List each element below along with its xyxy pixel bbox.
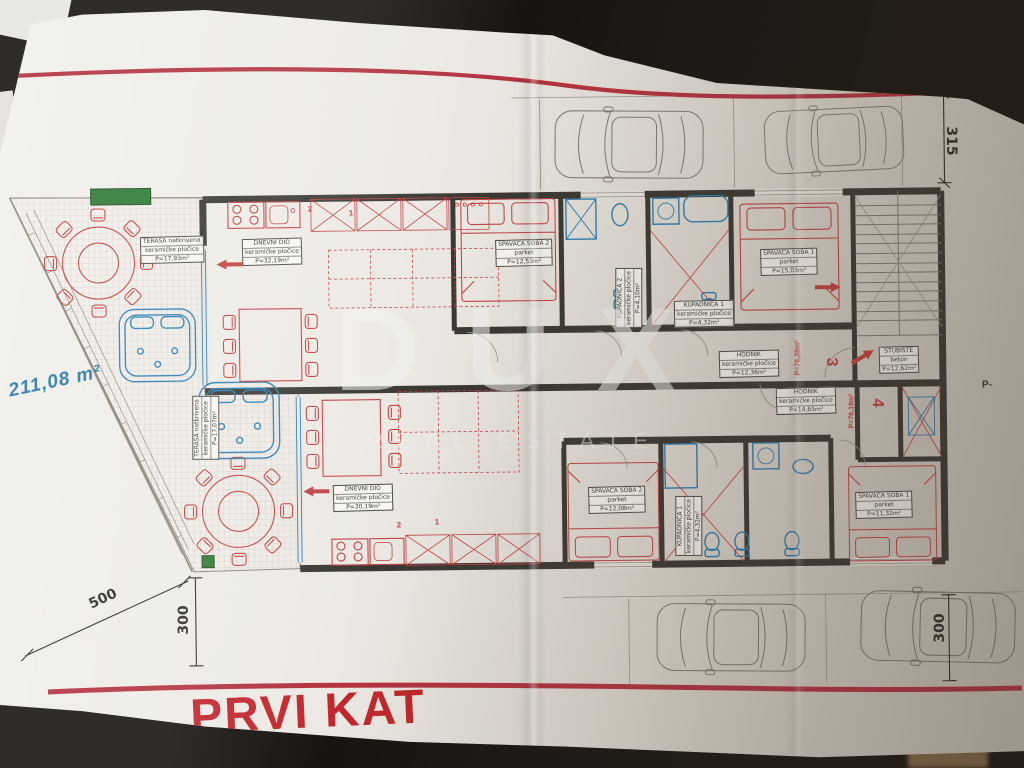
page-title: PRVI KAT [189, 679, 427, 744]
elevator-shaft [902, 387, 942, 457]
position-mark: 1 [435, 517, 440, 526]
room-label-terasa-lower: TERASA natkrivena keramičke pločice P=17… [192, 396, 219, 460]
room-area: P=12,08m² [590, 504, 645, 513]
entry-arrow-icon [216, 259, 242, 269]
room-area: P=4,32m² [694, 497, 702, 555]
room-label-terasa-upper: TERASA natkrivena keramičke pločice P=17… [140, 235, 204, 264]
dimension-300-right: 300 [932, 613, 948, 642]
room-floor: keramičke pločice [685, 497, 694, 555]
room-label-dnevni-lower: DNEVNI DIO keramičke pločice P=30,19m² [333, 484, 394, 513]
position-mark: 2 [397, 520, 402, 529]
room-area: P=12,62m² [880, 364, 918, 373]
parking-top [511, 89, 951, 193]
room-area: P=12,53m² [497, 257, 552, 266]
dining-table-upper [223, 308, 318, 381]
room-label-soba2-lower: SPAVAĆA SOBA 2 parket P=12,08m² [588, 486, 646, 515]
dimension-300-left: 300 [176, 605, 192, 634]
car-icon [554, 105, 704, 184]
car-icon [656, 598, 806, 677]
apartment-3-number: 3 [822, 358, 840, 367]
room-area: P=30,19m² [334, 502, 392, 511]
apartment-4-number: 4 [868, 399, 886, 408]
room-label-hodnik-lower: HODNIK keramičke pločice P=14,65m² [776, 387, 837, 416]
position-mark: 2 [308, 204, 313, 213]
floor-plan-paper: TERASA natkrivena keramičke pločice P=17… [0, 0, 1024, 768]
staircase [855, 191, 943, 336]
parking-bottom [563, 584, 1024, 685]
apartment-3-area: P=76,28m² [795, 341, 802, 376]
apartment-4-area: P=76,19m² [849, 394, 856, 429]
room-label-soba1-lower: SPAVAĆA SOBA 1 parket P=11,32m² [855, 491, 913, 520]
watermark-tagline: REAL ESTATE [367, 428, 662, 455]
room-label-soba2-upper: SPAVAĆA SOBA 2 parket P=12,53m² [495, 239, 553, 268]
p-label: P- [982, 380, 992, 391]
room-area: P=15,03m² [762, 266, 817, 275]
top-red-border [12, 69, 1010, 97]
room-area: P=32,19m² [243, 256, 301, 265]
room-label-stubiste: STUBIŠTE beton P=12,62m² [879, 346, 920, 374]
room-label-kupaonica1-lower: KUPAONICA 1 keramičke pločice P=4,32m² [675, 496, 702, 556]
entry-arrow-icon [303, 486, 329, 496]
dimension-315: 315 [943, 126, 959, 155]
photo-of-floor-plan: TERASA natkrivena keramičke pločice P=17… [0, 0, 1024, 768]
room-label-dnevni-upper: DNEVNI DIO keramičke pločice P=32,19m² [242, 238, 303, 267]
room-area: P=17,07m² [211, 397, 219, 459]
kitchen-upper [228, 197, 489, 232]
car-icon [763, 102, 904, 179]
room-area: P=17,93m² [141, 254, 203, 263]
planter [91, 188, 151, 205]
bathroom-lower-2 [753, 442, 814, 556]
room-name: TERASA natkrivena [193, 397, 202, 459]
room-area: P=12,36m² [720, 368, 778, 377]
planter [202, 556, 214, 568]
room-floor: keramičke pločice [202, 397, 211, 459]
position-mark: 1 [349, 208, 354, 217]
kitchen-lower [332, 534, 540, 567]
room-name: KUPAONICA 1 [676, 497, 685, 555]
room-area: P=11,32m² [857, 509, 912, 518]
watermark-brand: DUX [334, 282, 721, 418]
room-label-soba1-upper: SPAVAĆA SOBA 1 parket P=15,03m² [760, 248, 818, 277]
room-area: P=14,65m² [777, 405, 835, 414]
room-label-hodnik-upper: HODNIK keramičke pločice P=12,36m² [719, 350, 780, 379]
